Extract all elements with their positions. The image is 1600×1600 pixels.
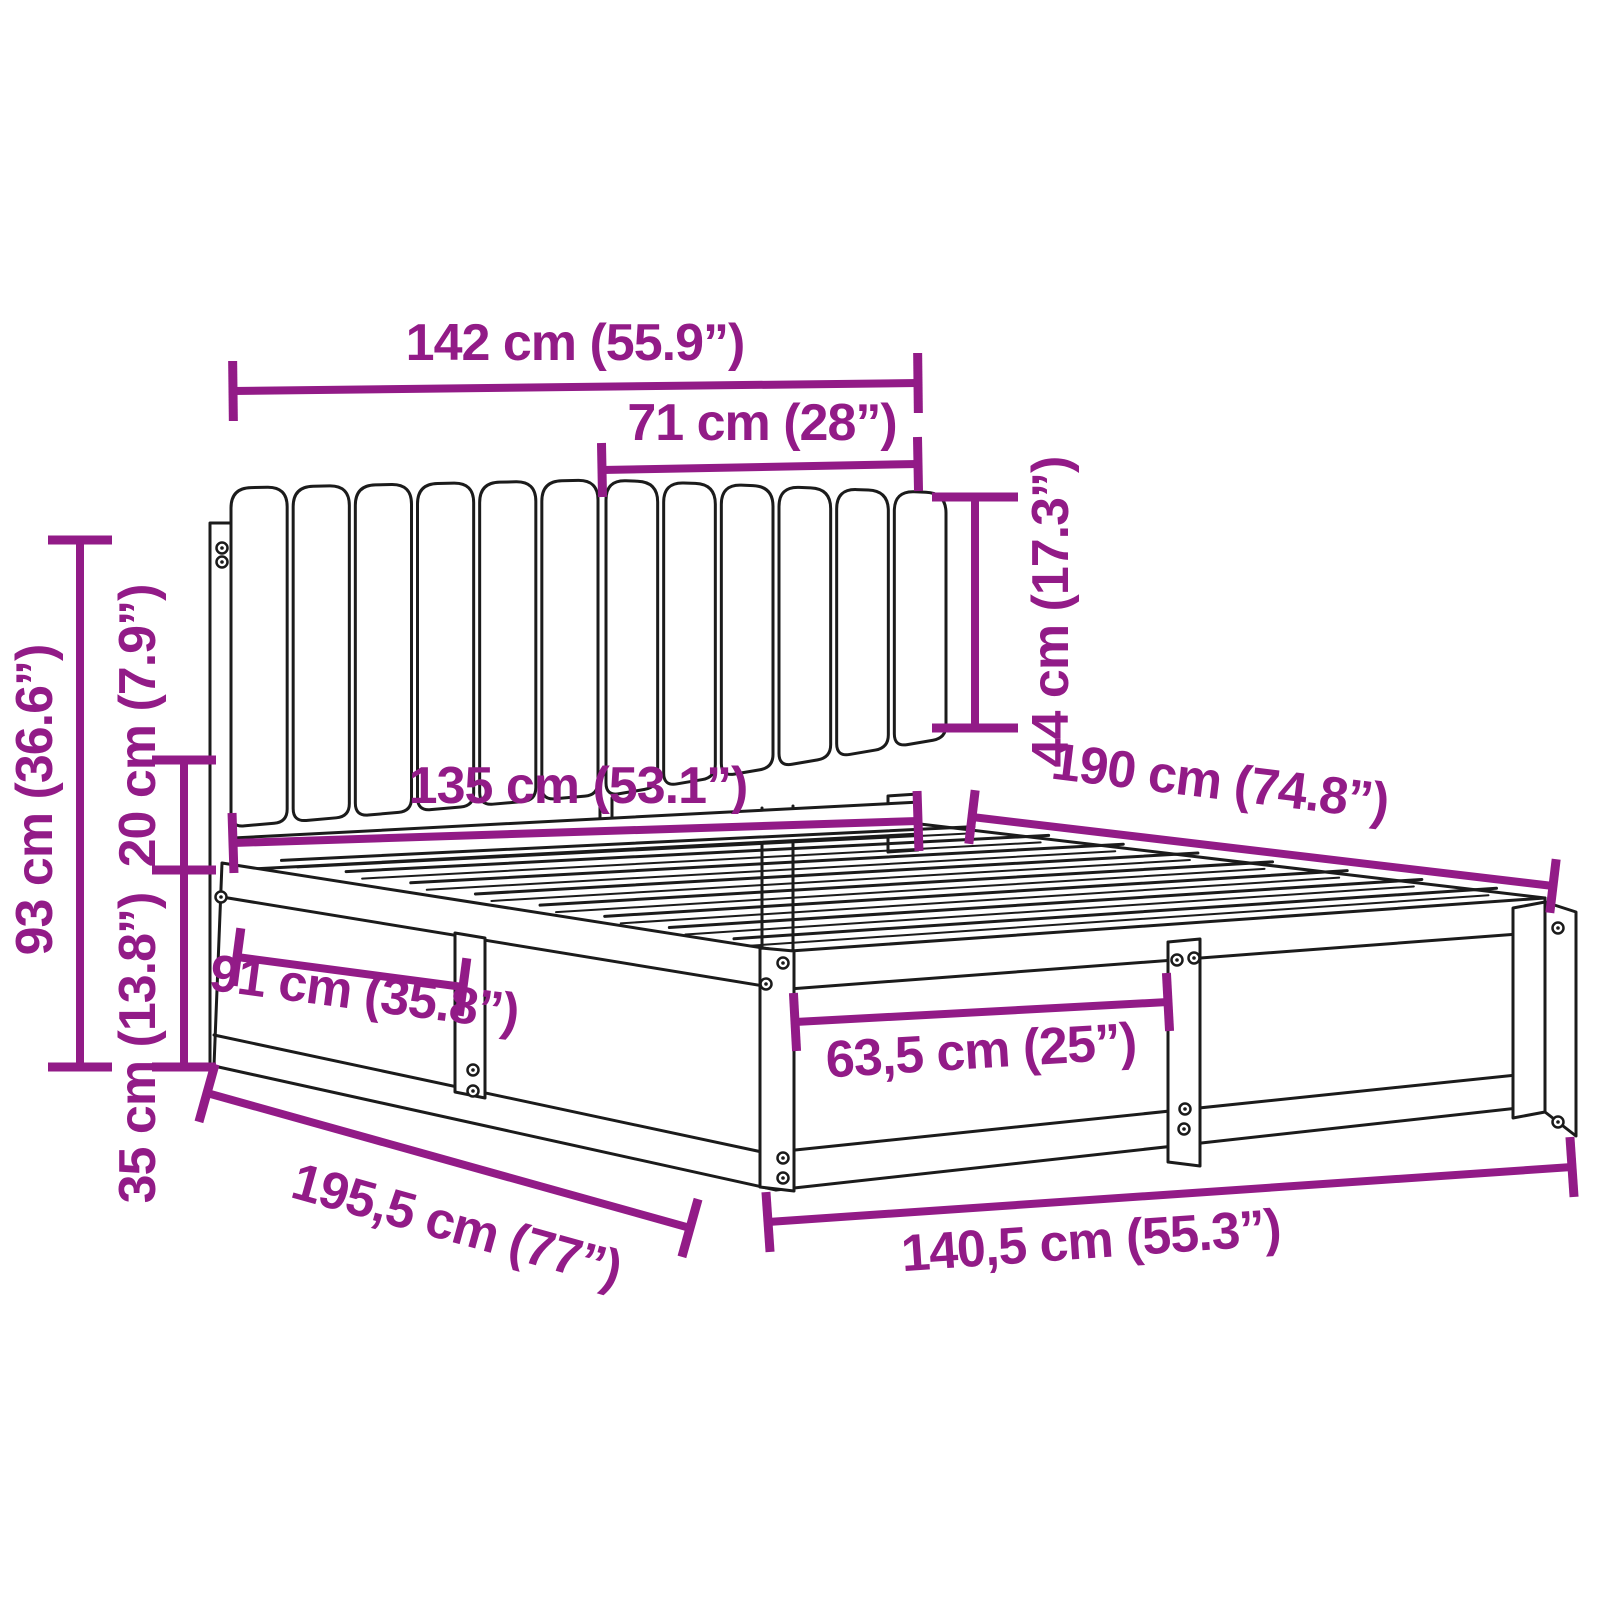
dim-label-headboard-cushion-height: 44 cm (17.3”) xyxy=(1022,457,1080,768)
corner-post-right-front xyxy=(1513,902,1545,1118)
diagram-canvas: 142 cm (55.9”) 71 cm (28”) 44 cm (17.3”)… xyxy=(0,0,1600,1600)
dim-label-headboard-gap-height: 20 cm (7.9”) xyxy=(109,585,167,868)
dim-label-mattress-length: 190 cm (74.8”) xyxy=(1048,733,1391,832)
dim-label-headboard-panel-width: 71 cm (28”) xyxy=(627,394,896,452)
dim-label-inner-width: 135 cm (53.1”) xyxy=(409,757,748,815)
dim-label-headboard-total-height: 93 cm (36.6”) xyxy=(6,645,64,956)
dim-label-total-length: 195,5 cm (77”) xyxy=(286,1152,628,1298)
corner-post-right-side xyxy=(1545,902,1576,1136)
dim-label-base-height: 35 cm (13.8”) xyxy=(109,893,167,1204)
dim-label-headboard-width: 142 cm (55.9”) xyxy=(406,314,745,372)
bed-dimension-diagram: 142 cm (55.9”) 71 cm (28”) 44 cm (17.3”)… xyxy=(0,0,1600,1600)
